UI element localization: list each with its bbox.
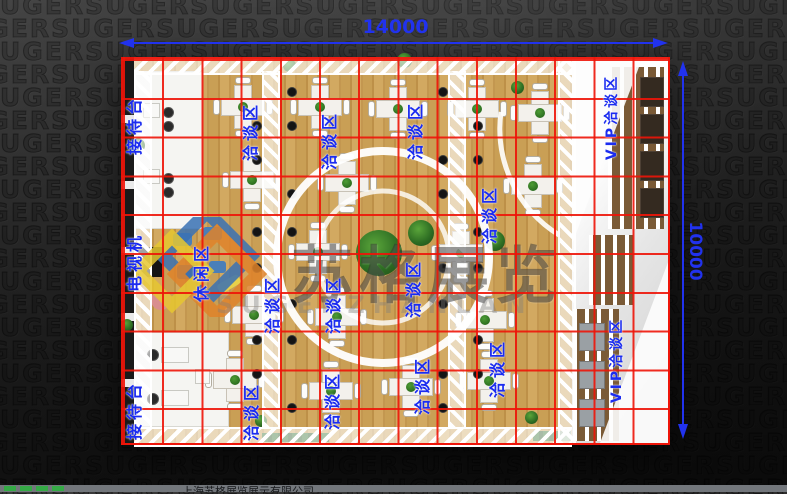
plant [525,411,538,424]
green-logo-icon [36,486,48,491]
chair [317,175,324,191]
area-label-meeting: 洽谈区 [400,258,424,318]
chair [290,99,297,115]
area-label-meeting: 洽谈区 [316,110,340,170]
table-plant [342,178,352,188]
chair [500,101,507,117]
chair [339,153,355,160]
area-label-reception: 接待台 [121,380,145,440]
chair [163,107,174,118]
arrow-up-icon [678,61,688,76]
area-label-meeting: 洽谈区 [237,101,261,161]
green-logo-icon [20,486,32,491]
dimension-top-line [127,42,660,44]
chair [370,175,377,191]
chair [235,77,251,84]
area-label-leisure: 休闲区 [188,242,212,302]
chair [323,361,339,368]
chair [434,379,441,395]
dimension-right-value: 10000 [685,206,705,296]
table-plant [247,175,257,185]
booth-table [579,361,605,389]
green-logo-icon [4,486,16,491]
chair [339,206,355,213]
stool [287,335,297,345]
table-plant [535,108,545,118]
chair [343,99,350,115]
chair [481,404,497,411]
chair [512,373,519,389]
bottom-bar: 上海苏格展览展示有限公司 [0,485,787,492]
chair [354,383,361,399]
chair [301,383,308,399]
plant [511,81,524,94]
booth-table [640,151,664,181]
stool [252,369,262,379]
chair [244,203,260,210]
chair [525,156,541,163]
booth-table [640,188,664,218]
dimension-top-value: 14000 [121,16,670,38]
desk [195,369,210,384]
booth-table [579,399,605,427]
chair [390,79,406,86]
stool [438,87,448,97]
area-label-meeting: 洽谈区 [409,355,433,415]
stool [473,369,483,379]
stool [438,403,448,413]
chair [163,173,174,184]
stool [252,335,262,345]
chair [329,340,345,347]
stool [438,155,448,165]
booth-table [640,77,664,107]
area-label-meeting: 洽谈区 [259,274,283,334]
chair [312,77,328,84]
arrow-right-icon [653,38,668,48]
chair [510,105,517,121]
stool [287,189,297,199]
area-label-vip: VIP洽谈区 [601,74,621,160]
area-label-meeting: 洽谈区 [320,274,344,334]
stool [473,155,483,165]
chair [163,187,174,198]
stool [287,87,297,97]
meeting-table [506,159,560,213]
chair [163,121,174,132]
stool [473,121,483,131]
stool [438,369,448,379]
stool [287,403,297,413]
booth-table [640,114,664,144]
area-label-vip: VIP洽谈区 [606,317,626,403]
chair [381,379,388,395]
chair [532,83,548,90]
arrow-left-icon [119,38,134,48]
desk [161,390,189,406]
stool [438,189,448,199]
area-label-tv: 电视机 [121,232,145,292]
plant [121,319,133,331]
table-plant [472,104,482,114]
dimension-top: 14000 [121,18,670,48]
area-label-reception: 接待台 [121,95,145,155]
dimension-right: 10000 [674,57,718,445]
chair [227,350,243,357]
stool [287,121,297,131]
chair [368,101,375,117]
company-name: 上海苏格展览展示有限公司 [182,486,314,492]
chair [469,132,485,139]
truss-top [134,57,572,75]
floor-plan: 苏格展览 SUGERZHANLAN 接待台电视机接待台休闲区洽谈区洽谈区洽谈区洽… [121,57,670,445]
arrow-down-icon [678,424,688,439]
area-label-meeting: 洽谈区 [484,338,508,398]
dimension-right-line [682,65,684,435]
chair [503,178,510,194]
louver-panel [589,235,633,305]
stool [473,335,483,345]
chair [469,79,485,86]
booth-table [579,323,605,351]
chair [525,209,541,216]
area-label-meeting: 洽谈区 [476,184,500,244]
truss-bottom [134,427,572,447]
chair [213,99,220,115]
desk [161,347,189,363]
area-label-meeting: 洽谈区 [402,100,426,160]
area-label-meeting: 洽谈区 [319,370,343,430]
green-logo-icon [52,486,64,491]
area-label-meeting: 洽谈区 [238,381,262,441]
table-plant [528,181,538,191]
chair [222,172,229,188]
chair [532,136,548,143]
